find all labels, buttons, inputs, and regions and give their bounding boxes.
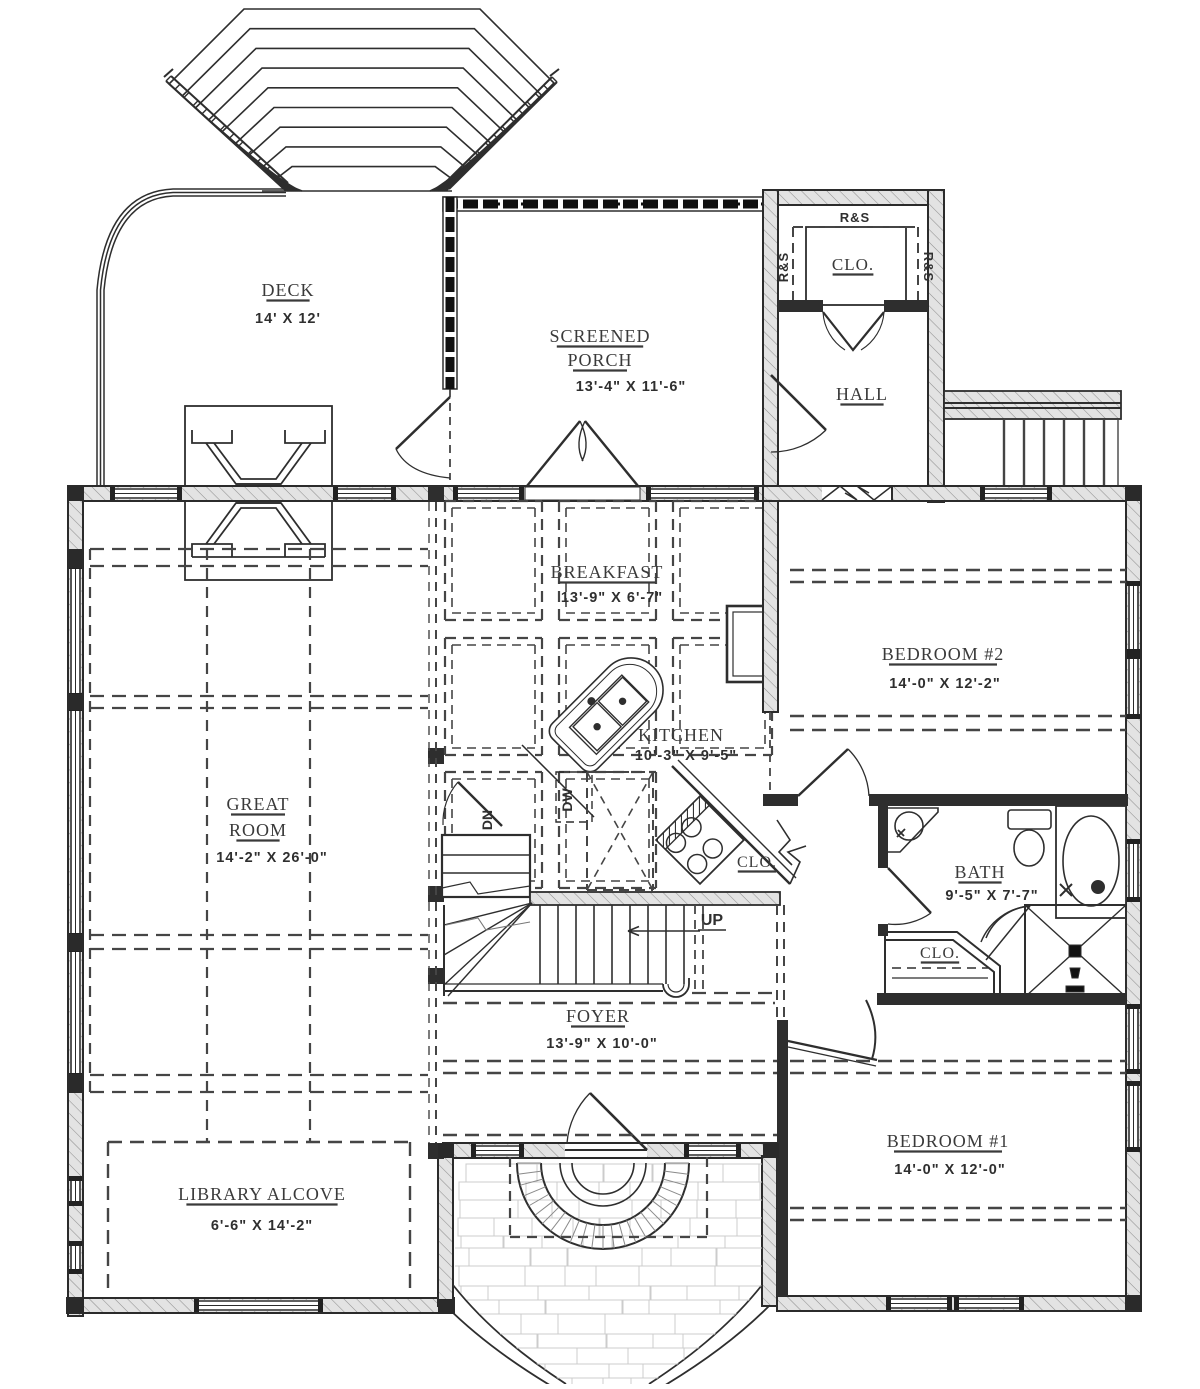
svg-text:14'-2" X 26'-0": 14'-2" X 26'-0" bbox=[216, 850, 327, 866]
svg-text:14'-0" X 12'-0": 14'-0" X 12'-0" bbox=[894, 1162, 1005, 1178]
svg-text:10'-3" X 9'-5": 10'-3" X 9'-5" bbox=[635, 748, 737, 764]
svg-text:DECK: DECK bbox=[262, 280, 315, 300]
svg-text:PORCH: PORCH bbox=[567, 350, 632, 370]
svg-text:6'-6" X 14'-2": 6'-6" X 14'-2" bbox=[211, 1218, 313, 1234]
svg-text:13'-4" X 11'-6": 13'-4" X 11'-6" bbox=[576, 379, 687, 395]
svg-text:BEDROOM #2: BEDROOM #2 bbox=[882, 644, 1005, 664]
svg-text:BEDROOM #1: BEDROOM #1 bbox=[887, 1131, 1010, 1151]
svg-text:BREAKFAST: BREAKFAST bbox=[551, 562, 664, 582]
svg-text:UP: UP bbox=[701, 912, 724, 929]
svg-text:13'-9" X 6'-7": 13'-9" X 6'-7" bbox=[561, 590, 663, 606]
svg-text:GREAT: GREAT bbox=[227, 794, 290, 814]
svg-text:BATH: BATH bbox=[954, 862, 1005, 882]
svg-text:DW: DW bbox=[559, 788, 575, 812]
svg-text:R&S: R&S bbox=[921, 252, 936, 282]
svg-text:CLO.: CLO. bbox=[737, 854, 777, 871]
svg-text:CLO.: CLO. bbox=[832, 255, 874, 274]
svg-text:R&S: R&S bbox=[776, 252, 791, 282]
svg-text:R&S: R&S bbox=[840, 210, 870, 225]
svg-text:HALL: HALL bbox=[836, 384, 888, 404]
svg-text:CLO.: CLO. bbox=[920, 945, 960, 962]
svg-text:13'-9" X 10'-0": 13'-9" X 10'-0" bbox=[546, 1036, 657, 1052]
svg-text:KITCHEN: KITCHEN bbox=[638, 725, 724, 745]
svg-text:SCREENED: SCREENED bbox=[549, 326, 650, 346]
svg-text:FOYER: FOYER bbox=[566, 1006, 630, 1026]
svg-text:LIBRARY ALCOVE: LIBRARY ALCOVE bbox=[178, 1184, 346, 1204]
svg-text:DN: DN bbox=[479, 810, 495, 830]
svg-text:14'-0" X 12'-2": 14'-0" X 12'-2" bbox=[889, 676, 1000, 692]
svg-text:14' X 12': 14' X 12' bbox=[255, 311, 321, 327]
svg-text:9'-5" X 7'-7": 9'-5" X 7'-7" bbox=[945, 888, 1038, 904]
svg-text:ROOM: ROOM bbox=[229, 820, 287, 840]
